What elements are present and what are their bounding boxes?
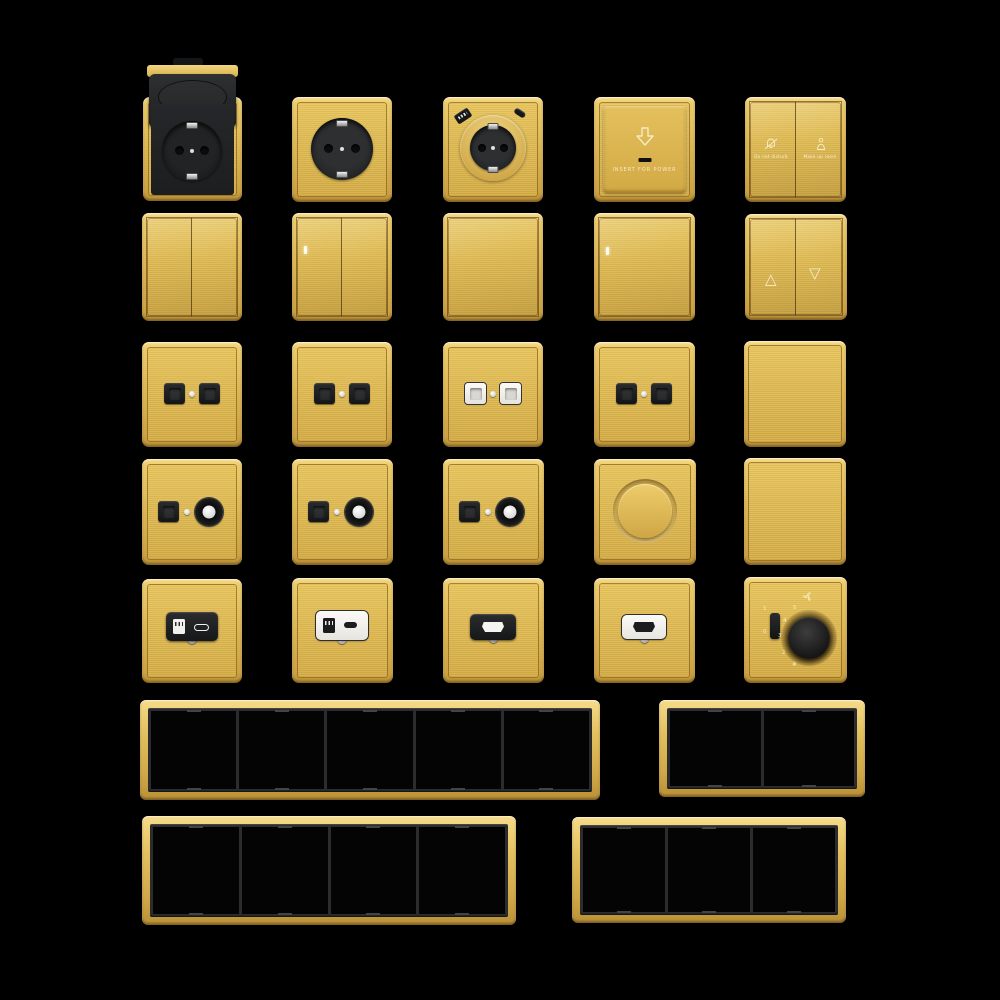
rotary-dimmer — [594, 459, 696, 565]
tv-data-socket-black — [142, 459, 242, 565]
pin-hole — [200, 146, 209, 155]
pin-hole — [478, 144, 486, 152]
schuko-socket-with-flip-cover — [143, 97, 242, 201]
schuko-socket-black — [292, 97, 392, 202]
dnd-label: Do not disturb — [751, 155, 791, 161]
frame-opening — [764, 711, 855, 786]
keystone-jack — [199, 383, 220, 404]
housekeeping-icon — [813, 137, 829, 151]
hdmi-socket-white — [594, 578, 695, 683]
rocker-right — [192, 217, 238, 317]
fan-off-label: 0 — [763, 629, 767, 635]
blank-plate — [744, 341, 846, 447]
earth-clip — [488, 123, 499, 130]
tv-data-socket-black — [292, 459, 393, 565]
pin-hole — [324, 144, 333, 153]
center-dot — [491, 146, 495, 150]
earth-clip — [186, 173, 198, 180]
earth-clip — [488, 166, 499, 173]
keystone-jack — [164, 383, 185, 404]
rocker-left — [749, 218, 796, 316]
hdmi-port — [482, 622, 504, 632]
rocker-switch-1-gang — [443, 213, 543, 321]
plate-face — [748, 345, 842, 443]
pin-hole — [500, 144, 508, 152]
mur-label: Make up room — [800, 155, 840, 161]
hdmi-module — [470, 614, 516, 640]
schuko-socket — [311, 118, 373, 180]
keystone-jack — [314, 383, 335, 404]
data-socket-double-white — [443, 342, 543, 447]
dimmer-knob — [618, 484, 672, 538]
blank-plate — [744, 458, 846, 565]
center-dot — [339, 391, 345, 397]
fan-dial-mark: 5 — [793, 605, 797, 611]
tv-data-socket-black — [443, 459, 544, 565]
socket-ring — [460, 115, 526, 181]
up-triangle-icon: △ — [765, 272, 777, 287]
coax-center — [504, 506, 517, 519]
schuko-socket-with-usb — [443, 97, 543, 202]
rocker-switch-1-gang-indicator — [594, 213, 695, 321]
fan-speed-controller: 1 0 5 4 3 2 ❄ — [744, 577, 847, 683]
frame-opening — [239, 711, 324, 789]
frame-4-gang — [142, 816, 516, 925]
frame-3-gang — [572, 817, 846, 923]
rocker-right — [342, 217, 388, 317]
usb-c-port — [344, 622, 357, 628]
center-dot — [485, 509, 491, 515]
frame-opening — [668, 828, 750, 912]
center-dot — [340, 147, 344, 151]
fan-knob — [788, 617, 830, 659]
keystone-jack — [158, 501, 179, 522]
center-dot — [334, 509, 340, 515]
frame-opening — [670, 711, 761, 786]
schuko-socket — [470, 125, 516, 171]
hdmi-socket-black — [443, 578, 544, 683]
frame-opening — [242, 827, 328, 914]
frame-opening — [151, 711, 236, 789]
coax-connector — [345, 498, 373, 526]
keystone-jack — [459, 501, 480, 522]
hdmi-port — [633, 622, 655, 632]
product-grid: INSERT FOR POWER Do not disturb Make up … — [0, 0, 1000, 1000]
rocker-left — [296, 217, 342, 317]
frame-opening — [416, 711, 501, 789]
down-triangle-icon: ▽ — [809, 266, 821, 281]
frame-inner — [667, 708, 857, 789]
frame-inner — [148, 708, 592, 792]
coax-center — [353, 506, 366, 519]
frame-opening — [153, 827, 239, 914]
frame-inner — [150, 824, 508, 917]
coax-center — [203, 506, 216, 519]
keystone-jack — [616, 383, 637, 404]
frame-inner — [580, 825, 838, 915]
earth-clip — [336, 171, 348, 178]
center-dot — [641, 391, 647, 397]
usb-charger-socket-black — [142, 579, 242, 683]
keystone-jack-white — [500, 383, 521, 404]
indicator-led — [304, 246, 307, 254]
usb-c-port — [194, 624, 209, 631]
frame-opening — [583, 828, 665, 912]
earth-clip — [336, 120, 348, 127]
card-well: INSERT FOR POWER — [603, 106, 686, 193]
do-not-disturb-make-up-room-switch: Do not disturb Make up room — [745, 97, 846, 202]
plate-face — [748, 462, 842, 561]
coax-connector — [496, 498, 524, 526]
usb-charger-module — [316, 611, 368, 640]
center-dot — [490, 391, 496, 397]
keystone-jack — [349, 383, 370, 404]
fan-on-label: 1 — [763, 606, 767, 612]
bell-slash-icon — [763, 137, 779, 151]
usb-a-port — [323, 618, 335, 633]
down-arrow-icon — [633, 126, 657, 148]
frame-opening — [327, 711, 412, 789]
keystone-jack — [308, 501, 329, 522]
frame-opening — [504, 711, 589, 789]
frame-opening — [753, 828, 835, 912]
frame-2-gang — [659, 700, 865, 797]
data-socket-double-black — [292, 342, 392, 447]
center-dot — [189, 391, 195, 397]
key-card-label: INSERT FOR POWER — [603, 167, 686, 173]
rocker-left — [146, 217, 192, 317]
usb-charger-socket-white — [292, 578, 393, 683]
center-dot — [184, 509, 190, 515]
card-slot — [638, 158, 651, 162]
keystone-jack-white — [465, 383, 486, 404]
keystone-jack — [651, 383, 672, 404]
data-socket-double-black — [142, 342, 242, 447]
hdmi-module — [622, 615, 666, 639]
usb-a-port — [173, 619, 185, 634]
pin-hole — [175, 146, 184, 155]
rocker — [598, 217, 691, 317]
frame-opening — [331, 827, 417, 914]
center-dot — [190, 149, 194, 153]
key-card-power-switch: INSERT FOR POWER — [594, 97, 695, 202]
earth-clip — [186, 122, 198, 129]
rocker-switch-2-gang — [142, 213, 242, 321]
rocker-switch-2-gang-indicator — [292, 213, 392, 321]
data-socket-double-black — [594, 342, 695, 447]
dimmer-well — [613, 479, 677, 543]
frame-opening — [419, 827, 505, 914]
rocker — [447, 217, 539, 317]
schuko-socket — [162, 121, 222, 181]
usb-charger-module — [166, 612, 218, 641]
indicator-led — [606, 247, 609, 255]
frame-5-gang — [140, 700, 600, 800]
curtain-blind-switch: △ ▽ — [745, 214, 847, 320]
coax-connector — [195, 498, 223, 526]
pin-hole — [351, 144, 360, 153]
fan-icon — [802, 591, 813, 602]
